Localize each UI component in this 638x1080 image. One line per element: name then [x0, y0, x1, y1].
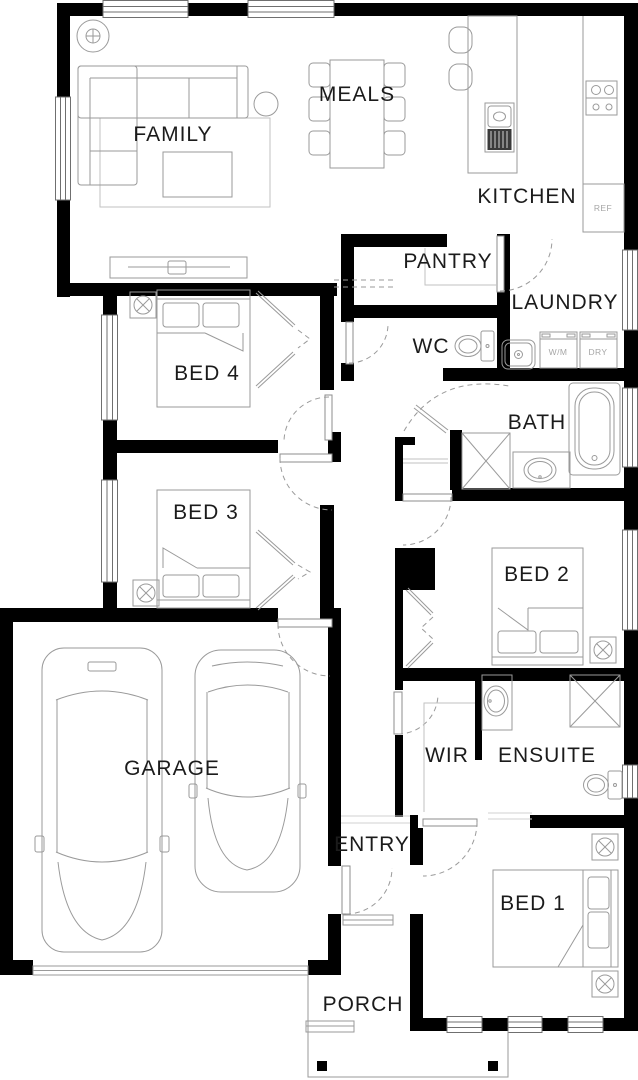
room-label-porch: PORCH	[323, 993, 404, 1017]
floor-plan: FAMILY MEALS KITCHEN PANTRY LAUNDRY WC B…	[0, 0, 638, 1080]
porch-post	[488, 1061, 498, 1071]
sink-icon	[485, 103, 514, 152]
floor-plan-drawing	[0, 0, 638, 1080]
side-table	[254, 92, 278, 116]
wardrobe-bifold-doors	[406, 588, 433, 668]
room-label-garage: GARAGE	[124, 757, 220, 781]
room-label-ensuite: ENSUITE	[498, 744, 596, 768]
bath-fixtures	[462, 383, 620, 489]
appliance-label-washer: W/M	[549, 347, 568, 357]
cooktop-icon	[586, 81, 617, 115]
window	[447, 1017, 482, 1033]
room-label-bed3: BED 3	[173, 501, 239, 525]
door	[280, 454, 332, 510]
room-label-entry: ENTRY	[334, 833, 410, 857]
window	[623, 388, 638, 467]
window	[623, 765, 638, 798]
window	[248, 1, 334, 18]
car	[35, 648, 169, 952]
ceiling-fan-icon	[133, 580, 159, 606]
door	[423, 819, 477, 876]
appliance-label-fridge: REF	[594, 203, 612, 213]
ceiling-fan-icon	[590, 637, 616, 663]
room-label-wc: WC	[413, 335, 450, 359]
room-label-wir: WIR	[425, 744, 469, 768]
family-furniture	[77, 20, 278, 278]
coffee-table	[163, 152, 232, 197]
wc-toilet-icon	[455, 331, 494, 361]
room-label-meals: MEALS	[319, 83, 395, 107]
door	[404, 384, 509, 433]
toilet-icon	[584, 771, 623, 799]
dining-set	[309, 60, 405, 168]
porch-post	[317, 1061, 327, 1071]
room-label-bed4: BED 4	[174, 362, 240, 386]
window	[508, 1017, 542, 1033]
window	[623, 530, 638, 630]
threshold	[488, 813, 532, 819]
window	[102, 480, 118, 582]
tv-unit	[110, 257, 247, 278]
room-label-bed2: BED 2	[504, 563, 570, 587]
room-label-pantry: PANTRY	[403, 250, 492, 274]
garage-door	[33, 966, 308, 975]
door	[403, 494, 452, 545]
wardrobe-bifold-doors	[256, 291, 310, 388]
entry-step	[343, 915, 393, 925]
appliance-label-dryer: DRY	[589, 347, 608, 357]
floor-lamp-icon	[77, 20, 109, 52]
ceiling-fan-icon	[592, 834, 618, 860]
window	[623, 250, 638, 330]
ceiling-fan-icon	[592, 971, 618, 997]
ensuite-fixtures	[482, 675, 622, 799]
linen-shelves	[403, 459, 448, 463]
door	[394, 692, 438, 734]
walls	[0, 3, 638, 1031]
bed4-furniture	[130, 290, 310, 407]
wardrobe-bifold-doors	[256, 530, 310, 610]
bed	[157, 290, 250, 407]
bathtub-icon	[569, 383, 620, 475]
window	[103, 1, 188, 18]
shower-icon	[462, 433, 510, 489]
window	[102, 315, 118, 420]
room-label-laundry: LAUNDRY	[512, 291, 619, 315]
porch-step	[306, 1021, 354, 1032]
shower-icon	[570, 675, 620, 727]
bed	[493, 870, 618, 967]
stool	[449, 27, 472, 53]
window	[568, 1017, 603, 1033]
room-label-kitchen: KITCHEN	[477, 185, 576, 209]
front-door	[342, 866, 392, 914]
vanity-basin-icon	[513, 452, 570, 488]
room-label-bath: BATH	[508, 411, 566, 435]
door	[278, 619, 332, 676]
room-label-family: FAMILY	[133, 123, 212, 147]
window	[56, 97, 71, 200]
stool	[449, 64, 472, 90]
garage-contents	[33, 648, 308, 975]
door	[346, 322, 388, 364]
door	[284, 395, 332, 442]
room-label-bed1: BED 1	[500, 892, 566, 916]
threshold	[341, 816, 410, 823]
vanity-basin-icon	[482, 675, 512, 730]
